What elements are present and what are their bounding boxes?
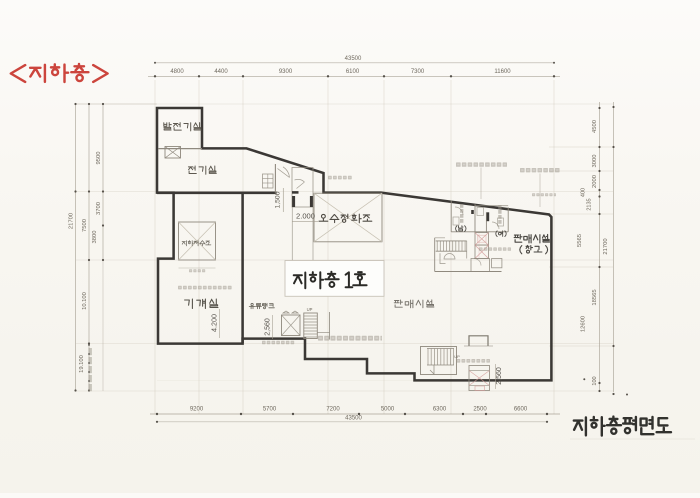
svg-text:4.200: 4.200	[210, 314, 219, 332]
svg-text:43500: 43500	[345, 56, 362, 62]
svg-text:1,500: 1,500	[274, 191, 281, 208]
svg-text:10.100: 10.100	[82, 292, 88, 310]
svg-text:6600: 6600	[514, 407, 528, 413]
svg-text:3000: 3000	[592, 155, 598, 168]
svg-text:5000: 5000	[381, 407, 395, 413]
svg-text:3700: 3700	[96, 202, 102, 215]
svg-text:3800: 3800	[92, 231, 98, 244]
svg-text:2,560: 2,560	[265, 318, 272, 336]
svg-text:9200: 9200	[190, 407, 204, 413]
svg-text:18565: 18565	[592, 289, 598, 305]
svg-text:7500: 7500	[82, 219, 88, 232]
svg-text:12600: 12600	[581, 316, 587, 332]
svg-text:19.100: 19.100	[79, 355, 85, 373]
svg-text:6100: 6100	[346, 69, 360, 75]
svg-text:5565: 5565	[577, 234, 583, 247]
svg-text:UP: UP	[454, 354, 460, 359]
svg-text:2,560: 2,560	[496, 367, 503, 385]
svg-text:2.000: 2.000	[296, 212, 315, 221]
svg-text:100: 100	[592, 376, 598, 385]
svg-text:9300: 9300	[279, 69, 293, 75]
svg-text:9500: 9500	[96, 152, 102, 165]
svg-text:21700: 21700	[603, 238, 609, 254]
svg-text:4800: 4800	[170, 69, 184, 75]
svg-text:2500: 2500	[473, 407, 487, 413]
svg-text:400: 400	[581, 188, 587, 197]
svg-text:5700: 5700	[263, 407, 277, 413]
svg-text:43500: 43500	[345, 415, 362, 421]
svg-text:4400: 4400	[214, 69, 228, 75]
svg-text:7200: 7200	[326, 407, 340, 413]
svg-text:4500: 4500	[592, 120, 598, 133]
svg-text:6300: 6300	[433, 407, 447, 413]
svg-text:2000: 2000	[592, 175, 598, 188]
svg-text:7300: 7300	[411, 69, 425, 75]
svg-text:2135: 2135	[587, 198, 593, 210]
svg-text:UP: UP	[307, 307, 313, 312]
svg-text:11600: 11600	[494, 69, 511, 75]
svg-text:21700: 21700	[69, 213, 75, 229]
